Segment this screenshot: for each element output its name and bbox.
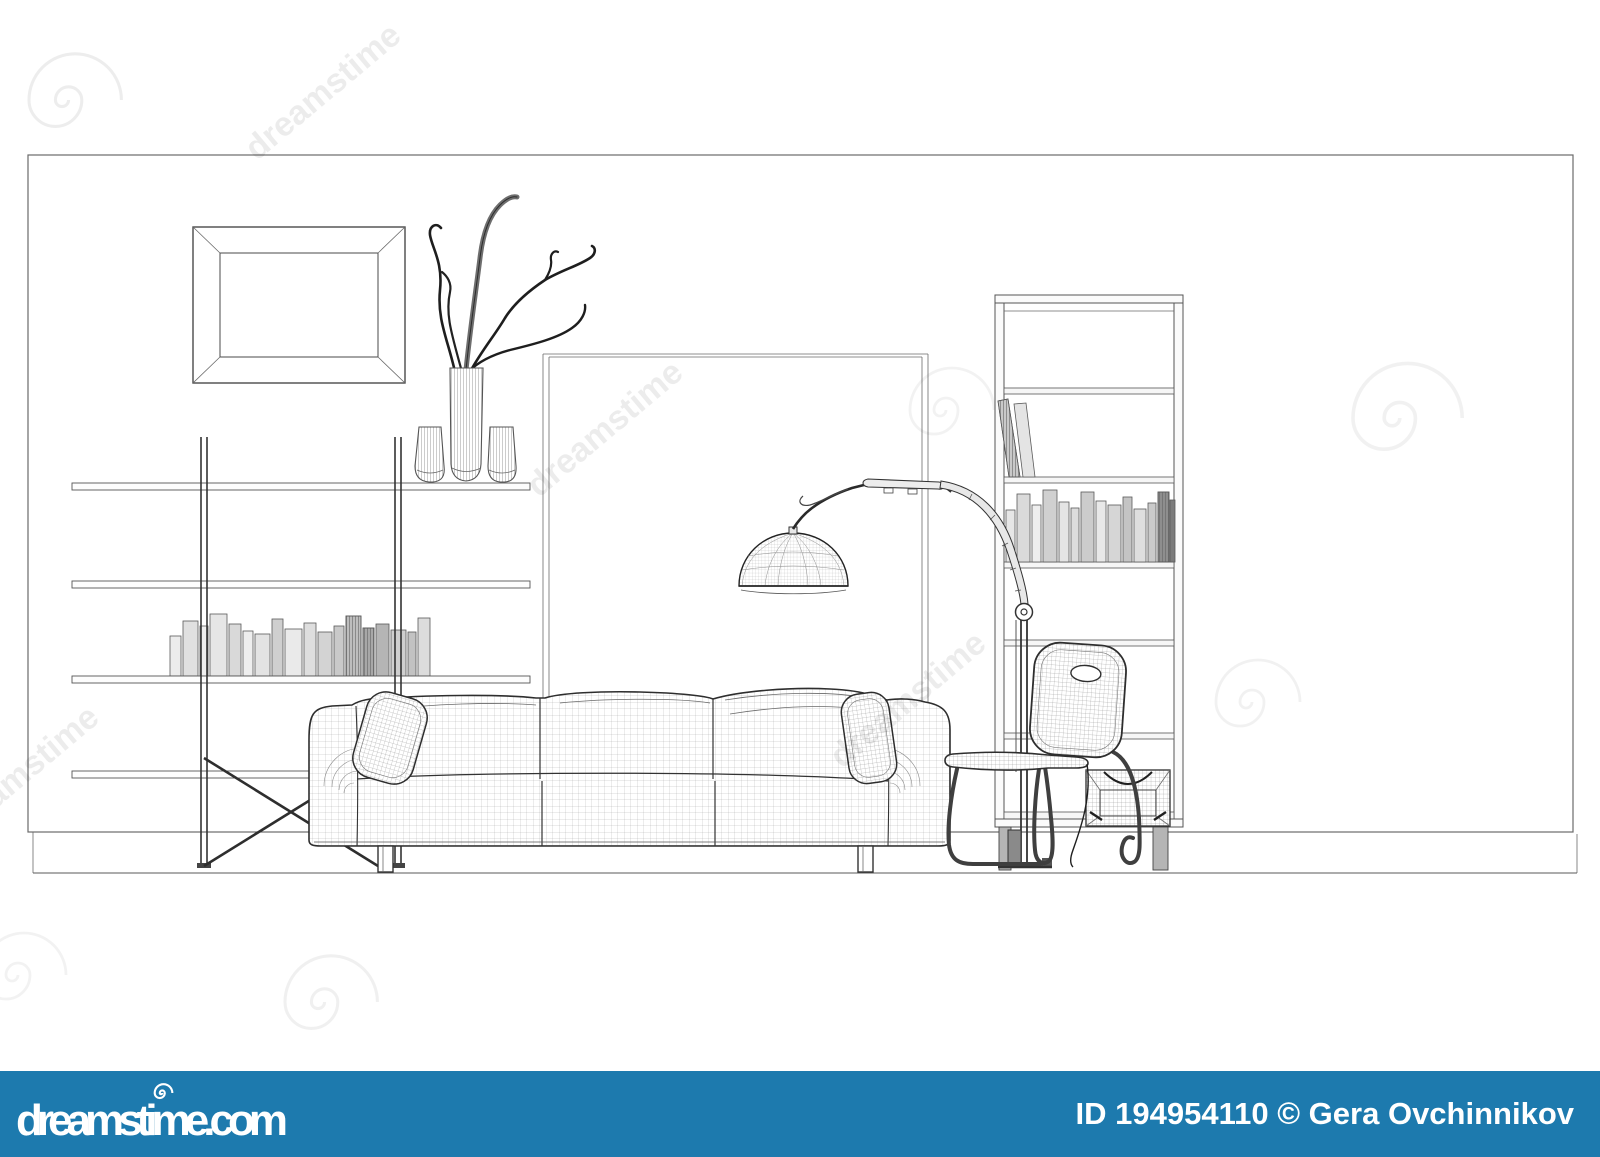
- watermark-spiral: [285, 956, 377, 1029]
- footer-bar: dreamstime.com ID 194954110 © Gera Ovchi…: [0, 1071, 1600, 1157]
- chair-back: [1028, 641, 1128, 759]
- wire-basket: [1086, 770, 1170, 826]
- dreamstime-logo: dreamstime.com: [16, 1096, 288, 1145]
- picture-frame: [193, 227, 405, 383]
- sofa: [309, 687, 950, 872]
- watermark-text: dreamstime: [238, 16, 409, 168]
- wireframe-scene: dreamstime dreamstime dreamstime dreamst…: [0, 0, 1600, 1157]
- stock-image-preview: dreamstime dreamstime dreamstime dreamst…: [0, 0, 1600, 1157]
- watermark-spiral: [0, 933, 66, 999]
- image-credit: ID 194954110 © Gera Ovchinnikov: [1076, 1096, 1575, 1131]
- watermark-spiral: [29, 54, 121, 127]
- bookcase-leg: [1153, 827, 1168, 870]
- sofa-legs: [378, 846, 873, 872]
